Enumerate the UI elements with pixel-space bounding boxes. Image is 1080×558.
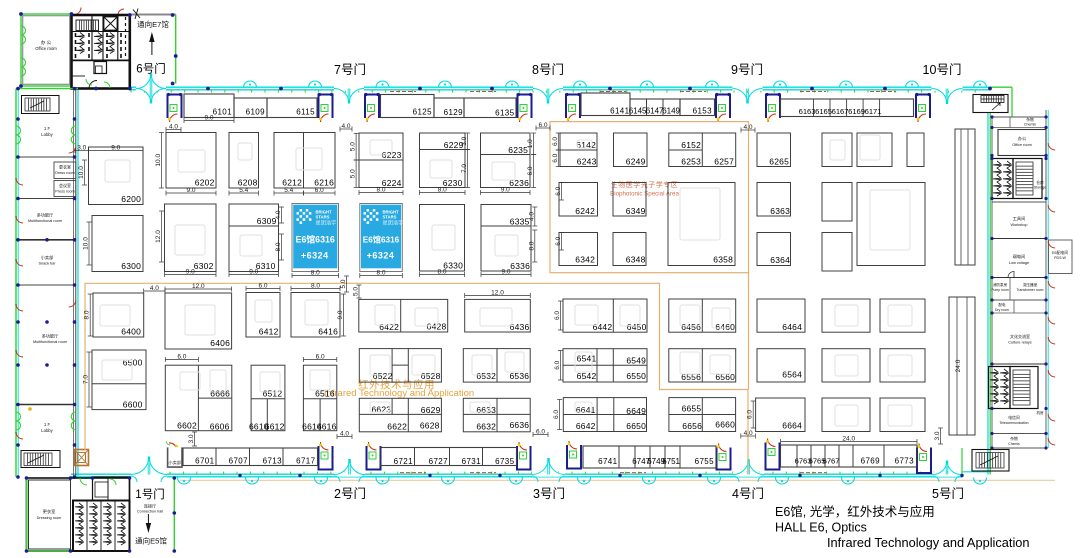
svg-text:6632: 6632 [476, 421, 496, 431]
svg-text:3.0: 3.0 [77, 144, 86, 151]
svg-text:8.0: 8.0 [376, 186, 385, 193]
svg-text:6536: 6536 [509, 371, 529, 381]
svg-text:3.0: 3.0 [461, 136, 468, 145]
svg-text:4.0: 4.0 [744, 430, 753, 437]
svg-text:STARS: STARS [316, 215, 330, 220]
svg-text:9.0: 9.0 [204, 114, 213, 121]
svg-text:6115: 6115 [296, 108, 315, 117]
svg-text:5.4: 5.4 [239, 187, 248, 194]
svg-text:6101: 6101 [213, 108, 233, 117]
svg-text:星团浩宇: 星团浩宇 [383, 219, 404, 227]
svg-text:6606: 6606 [210, 421, 230, 431]
svg-text:4.0: 4.0 [169, 123, 178, 130]
svg-text:5.0: 5.0 [353, 287, 360, 296]
svg-text:6628: 6628 [420, 421, 440, 431]
svg-text:6129: 6129 [444, 108, 464, 117]
svg-text:6171: 6171 [865, 107, 882, 116]
svg-text:6.0: 6.0 [553, 410, 560, 419]
svg-text:6141: 6141 [610, 107, 630, 116]
svg-text:24.0: 24.0 [842, 435, 855, 442]
svg-text:通向E7馆: 通向E7馆 [137, 19, 169, 29]
svg-text:6.0: 6.0 [747, 410, 754, 419]
svg-text:6125: 6125 [413, 108, 433, 117]
svg-text:10.0: 10.0 [83, 237, 90, 250]
svg-text:9.0: 9.0 [111, 144, 120, 151]
svg-text:6.0: 6.0 [315, 187, 324, 194]
svg-text:6550: 6550 [626, 371, 646, 381]
svg-text:6416: 6416 [318, 327, 338, 337]
svg-text:Pump room: Pump room [991, 288, 1009, 292]
svg-text:6242: 6242 [575, 206, 595, 216]
svg-text:4.0: 4.0 [528, 212, 535, 221]
svg-text:6622: 6622 [387, 421, 407, 431]
svg-text:6.0: 6.0 [554, 360, 561, 369]
svg-text:6149: 6149 [662, 107, 680, 116]
svg-text:9.0: 9.0 [337, 310, 344, 319]
svg-text:6.0: 6.0 [258, 282, 267, 289]
svg-text:1 F: 1 F [44, 422, 50, 427]
svg-text:6.0: 6.0 [177, 353, 186, 360]
svg-text:6302: 6302 [194, 261, 214, 271]
svg-text:9.0: 9.0 [186, 268, 195, 275]
svg-text:6.0: 6.0 [552, 137, 559, 146]
svg-text:8.0: 8.0 [311, 269, 320, 276]
svg-text:24.0: 24.0 [955, 359, 962, 372]
svg-text:6541: 6541 [577, 354, 597, 364]
svg-text:6755: 6755 [695, 457, 715, 466]
svg-text:Biophotonic Special Area: Biophotonic Special Area [610, 191, 679, 198]
svg-text:6342: 6342 [575, 255, 595, 265]
svg-text:6.0: 6.0 [555, 186, 562, 195]
svg-text:9.0: 9.0 [501, 186, 510, 193]
svg-text:6528: 6528 [421, 371, 441, 381]
svg-text:Dress room: Dress room [55, 171, 75, 175]
svg-text:6701: 6701 [195, 457, 215, 466]
svg-text:配电: 配电 [998, 302, 1006, 307]
svg-text:6612: 6612 [265, 421, 285, 431]
svg-text:6349: 6349 [626, 206, 646, 216]
svg-text:办 公: 办 公 [41, 39, 52, 46]
svg-text:9.0: 9.0 [186, 187, 195, 194]
svg-text:7.0: 7.0 [461, 164, 468, 173]
svg-text:Chemis: Chemis [1008, 442, 1020, 446]
svg-text:6167: 6167 [832, 107, 849, 116]
svg-text:机房: 机房 [1036, 410, 1044, 415]
svg-text:弱电间: 弱电间 [1013, 253, 1026, 260]
svg-text:1 F: 1 F [44, 126, 50, 131]
svg-text:仓库: 仓库 [1036, 180, 1044, 185]
svg-text:10号门: 10号门 [923, 62, 962, 77]
svg-text:6751: 6751 [662, 457, 680, 466]
svg-text:6666: 6666 [210, 388, 230, 398]
svg-text:6512: 6512 [263, 388, 283, 398]
svg-text:6721: 6721 [394, 457, 414, 466]
svg-text:6363: 6363 [770, 206, 790, 216]
svg-text:6636: 6636 [509, 420, 529, 430]
svg-text:6257: 6257 [714, 157, 734, 167]
svg-text:6249: 6249 [626, 157, 646, 167]
svg-text:12.0: 12.0 [155, 230, 162, 243]
svg-text:Multifunctional room: Multifunctional room [28, 219, 62, 223]
svg-text:6.0: 6.0 [554, 311, 561, 320]
svg-text:6309: 6309 [257, 216, 277, 226]
svg-text:6.0: 6.0 [538, 122, 547, 129]
svg-text:Storage: Storage [1034, 186, 1047, 190]
svg-text:5号门: 5号门 [932, 486, 964, 501]
svg-text:5.0: 5.0 [340, 279, 347, 288]
svg-text:6602: 6602 [177, 421, 197, 431]
svg-text:Press room: Press room [55, 190, 74, 194]
svg-text:连接厅: 连接厅 [144, 503, 157, 510]
svg-text:Chemis: Chemis [1024, 123, 1036, 127]
svg-text:6400: 6400 [121, 327, 141, 337]
svg-text:小卖部: 小卖部 [168, 459, 181, 466]
svg-text:10.0: 10.0 [155, 154, 162, 167]
svg-text:7.0: 7.0 [83, 375, 90, 384]
svg-text:6741: 6741 [598, 457, 618, 466]
svg-text:更衣室: 更衣室 [43, 508, 56, 515]
svg-text:5.0: 5.0 [350, 142, 357, 151]
svg-text:7号门: 7号门 [334, 62, 366, 77]
svg-text:4号门: 4号门 [732, 486, 764, 501]
svg-text:6.0: 6.0 [555, 236, 562, 245]
svg-text:1号门: 1号门 [135, 487, 164, 501]
svg-text:Dry room: Dry room [995, 308, 1009, 312]
svg-text:消防泵房: 消防泵房 [993, 282, 1008, 287]
svg-text:9.0: 9.0 [249, 268, 258, 275]
svg-text:6707: 6707 [229, 457, 249, 466]
svg-text:6436: 6436 [510, 322, 530, 332]
svg-text:6717: 6717 [296, 457, 316, 466]
svg-text:6200: 6200 [121, 194, 141, 204]
svg-text:5.0: 5.0 [350, 169, 357, 178]
svg-text:6300: 6300 [121, 261, 141, 271]
svg-text:6412: 6412 [259, 327, 279, 337]
svg-text:6253: 6253 [681, 157, 701, 167]
svg-text:6500: 6500 [123, 358, 143, 368]
svg-text:9号门: 9号门 [731, 62, 763, 77]
svg-text:Multifunctional room: Multifunctional room [33, 340, 67, 344]
svg-text:Dressing room: Dressing room [37, 516, 62, 520]
svg-text:6364: 6364 [770, 255, 790, 265]
svg-text:HALL E6, Optics: HALL E6, Optics [775, 521, 867, 535]
svg-text:Transformer room: Transformer room [1016, 288, 1043, 292]
svg-text:E6配电间: E6配电间 [1052, 250, 1068, 255]
svg-text:2号门: 2号门 [334, 486, 366, 501]
svg-text:6650: 6650 [626, 421, 646, 431]
svg-text:6号门: 6号门 [136, 62, 165, 76]
svg-text:Lobby: Lobby [41, 132, 53, 137]
svg-text:6532: 6532 [476, 371, 496, 381]
svg-text:6135: 6135 [495, 109, 515, 118]
svg-text:6.0: 6.0 [536, 428, 545, 435]
svg-text:6564: 6564 [782, 370, 802, 380]
svg-text:通向E5馆: 通向E5馆 [135, 536, 167, 546]
svg-text:电信间: 电信间 [1008, 415, 1020, 420]
svg-text:4.0: 4.0 [150, 285, 159, 292]
svg-text:6641: 6641 [576, 405, 596, 415]
svg-text:4.0: 4.0 [341, 123, 350, 130]
svg-text:6656: 6656 [682, 421, 702, 431]
svg-text:6464: 6464 [782, 322, 802, 332]
svg-text:Snack bar: Snack bar [38, 262, 56, 266]
svg-text:Low voltage: Low voltage [1009, 261, 1029, 265]
svg-text:6456: 6456 [681, 322, 701, 332]
svg-text:6460: 6460 [715, 322, 735, 332]
svg-text:星团浩宇: 星团浩宇 [316, 219, 337, 227]
svg-text:8.0: 8.0 [438, 186, 447, 193]
svg-text:6.0: 6.0 [552, 153, 559, 162]
svg-text:Lobby: Lobby [41, 428, 53, 433]
svg-text:6735: 6735 [495, 457, 515, 466]
svg-text:小卖部: 小卖部 [41, 254, 54, 261]
svg-text:STARS: STARS [383, 215, 397, 220]
svg-text:6422: 6422 [379, 322, 399, 332]
svg-text:6265: 6265 [769, 157, 789, 167]
svg-text:6655: 6655 [682, 403, 702, 413]
svg-text:Workshop: Workshop [1010, 223, 1027, 227]
svg-text:多功能厅: 多功能厅 [37, 212, 54, 219]
svg-text:4.0: 4.0 [743, 124, 752, 131]
svg-text:6163: 6163 [799, 107, 816, 116]
svg-text:6769: 6769 [861, 457, 881, 466]
svg-text:8.0: 8.0 [528, 241, 535, 250]
svg-text:6600: 6600 [123, 400, 143, 410]
svg-text:6243: 6243 [577, 157, 597, 167]
svg-text:+6324: +6324 [301, 251, 329, 261]
svg-text:6335: 6335 [510, 217, 530, 227]
svg-text:杂物: 杂物 [1026, 117, 1034, 122]
svg-text:6109: 6109 [246, 108, 266, 117]
svg-text:1.0: 1.0 [527, 139, 534, 148]
svg-text:E6馆6316: E6馆6316 [296, 234, 335, 245]
svg-text:8号门: 8号门 [532, 62, 564, 77]
svg-text:4.0: 4.0 [340, 430, 349, 437]
svg-text:6442: 6442 [593, 322, 613, 332]
svg-text:10.0: 10.0 [78, 166, 85, 179]
svg-text:8.0: 8.0 [311, 282, 320, 289]
svg-text:4.0: 4.0 [275, 210, 282, 219]
svg-text:6542: 6542 [577, 371, 597, 381]
svg-text:更衣室: 更衣室 [59, 164, 71, 170]
svg-text:6773: 6773 [895, 457, 915, 466]
svg-text:8.0: 8.0 [275, 242, 282, 251]
svg-text:6202: 6202 [195, 178, 215, 188]
svg-text:PDS.W: PDS.W [1054, 256, 1066, 260]
svg-text:5.4: 5.4 [284, 187, 293, 194]
svg-text:6153: 6153 [693, 107, 713, 116]
svg-text:E6馆6316: E6馆6316 [363, 235, 400, 245]
svg-text:工具间: 工具间 [1013, 215, 1026, 222]
svg-text:6152: 6152 [681, 140, 701, 150]
svg-text:6629: 6629 [421, 405, 441, 415]
svg-text:6660: 6660 [715, 419, 735, 429]
svg-text:12.0: 12.0 [192, 283, 205, 290]
svg-text:+6324: +6324 [367, 251, 395, 261]
svg-text:6336: 6336 [510, 261, 530, 271]
svg-text:Infrared Technology and Applic: Infrared Technology and Application [324, 388, 474, 399]
svg-text:文化交流室: 文化交流室 [1010, 333, 1030, 339]
svg-text:Infrared Technology and Applic: Infrared Technology and Application [827, 535, 1030, 550]
svg-text:多功能厅: 多功能厅 [42, 333, 59, 340]
svg-text:8.0: 8.0 [377, 269, 386, 276]
svg-text:6169: 6169 [848, 107, 865, 116]
svg-text:变压器室: 变压器室 [1023, 282, 1038, 287]
svg-text:6767: 6767 [823, 457, 840, 466]
svg-text:Telecommunication: Telecommunication [999, 421, 1028, 425]
svg-text:6642: 6642 [576, 421, 596, 431]
svg-text:Office room: Office room [1012, 143, 1032, 147]
svg-text:6406: 6406 [210, 338, 230, 348]
svg-text:12.0: 12.0 [491, 289, 504, 296]
svg-text:6165: 6165 [815, 107, 832, 116]
svg-text:6727: 6727 [429, 457, 449, 466]
svg-text:6235: 6235 [508, 145, 528, 155]
svg-text:Connection hall: Connection hall [137, 510, 163, 514]
svg-text:9.0: 9.0 [501, 268, 510, 275]
svg-text:3号门: 3号门 [533, 486, 565, 501]
svg-text:杂物: 杂物 [1010, 436, 1018, 441]
svg-text:6.0: 6.0 [527, 166, 534, 175]
svg-text:6664: 6664 [782, 421, 802, 431]
svg-text:6649: 6649 [626, 406, 646, 416]
svg-text:办公: 办公 [1018, 135, 1027, 142]
svg-text:6145: 6145 [629, 107, 647, 116]
svg-text:Culture relays: Culture relays [1008, 341, 1032, 345]
svg-text:3.0: 3.0 [188, 434, 195, 443]
svg-text:6731: 6731 [462, 457, 482, 466]
svg-text:6623: 6623 [371, 405, 391, 415]
svg-text:会议室: 会议室 [59, 182, 71, 188]
svg-text:6348: 6348 [626, 255, 646, 265]
svg-text:6358: 6358 [713, 255, 733, 265]
svg-text:3.0: 3.0 [934, 431, 941, 440]
svg-text:6713: 6713 [263, 457, 283, 466]
svg-text:6450: 6450 [627, 322, 647, 332]
svg-text:8.0: 8.0 [84, 310, 91, 319]
svg-text:6616: 6616 [317, 421, 337, 431]
svg-text:6633: 6633 [476, 405, 496, 415]
svg-text:Office room: Office room [35, 46, 57, 51]
svg-text:8.0: 8.0 [437, 268, 446, 275]
svg-text:6310: 6310 [256, 261, 276, 271]
svg-text:6.0: 6.0 [316, 353, 325, 360]
svg-text:E6馆, 光学，红外技术与应用: E6馆, 光学，红外技术与应用 [775, 504, 935, 519]
svg-text:6549: 6549 [626, 355, 646, 365]
